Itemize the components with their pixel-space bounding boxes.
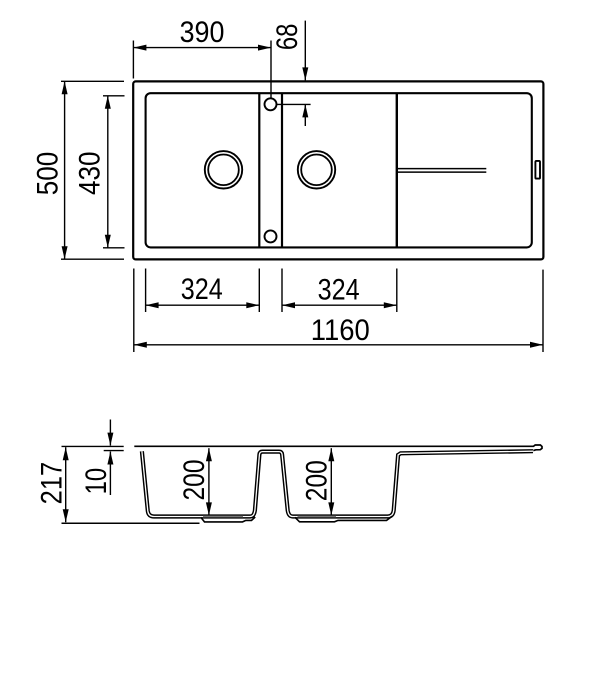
svg-text:68: 68	[271, 24, 304, 51]
svg-text:500: 500	[32, 152, 65, 196]
svg-text:390: 390	[180, 16, 225, 49]
svg-text:217: 217	[36, 462, 69, 505]
svg-text:10: 10	[80, 468, 113, 495]
svg-text:430: 430	[74, 152, 107, 196]
svg-text:200: 200	[301, 460, 334, 501]
svg-text:324: 324	[318, 273, 360, 306]
svg-text:200: 200	[178, 460, 211, 501]
svg-text:324: 324	[181, 273, 223, 306]
svg-text:1160: 1160	[311, 314, 370, 347]
